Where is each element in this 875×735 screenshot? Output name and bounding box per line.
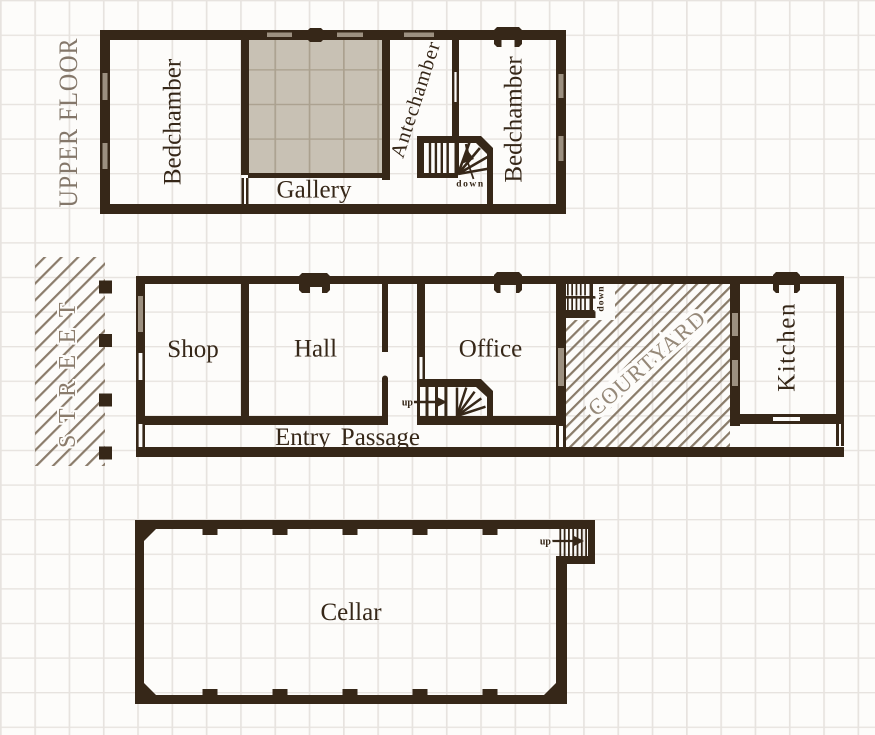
svg-text:down: down	[456, 180, 485, 190]
svg-text:Shop: Shop	[167, 336, 218, 363]
svg-text:Bedchamber: Bedchamber	[160, 58, 187, 185]
svg-text:UPPER FLOOR: UPPER FLOOR	[54, 38, 83, 208]
svg-text:Hall: Hall	[294, 336, 337, 363]
svg-text:Bedchamber: Bedchamber	[501, 56, 528, 183]
svg-text:up: up	[540, 537, 552, 548]
svg-text:Gallery: Gallery	[277, 177, 352, 204]
svg-text:down: down	[597, 285, 607, 311]
svg-text:STREET: STREET	[55, 291, 81, 448]
svg-text:Entry Passage: Entry Passage	[275, 424, 420, 451]
svg-text:up: up	[402, 398, 414, 409]
svg-text:Cellar: Cellar	[320, 599, 382, 626]
svg-text:Office: Office	[459, 336, 522, 363]
svg-text:Kitchen: Kitchen	[774, 302, 801, 392]
